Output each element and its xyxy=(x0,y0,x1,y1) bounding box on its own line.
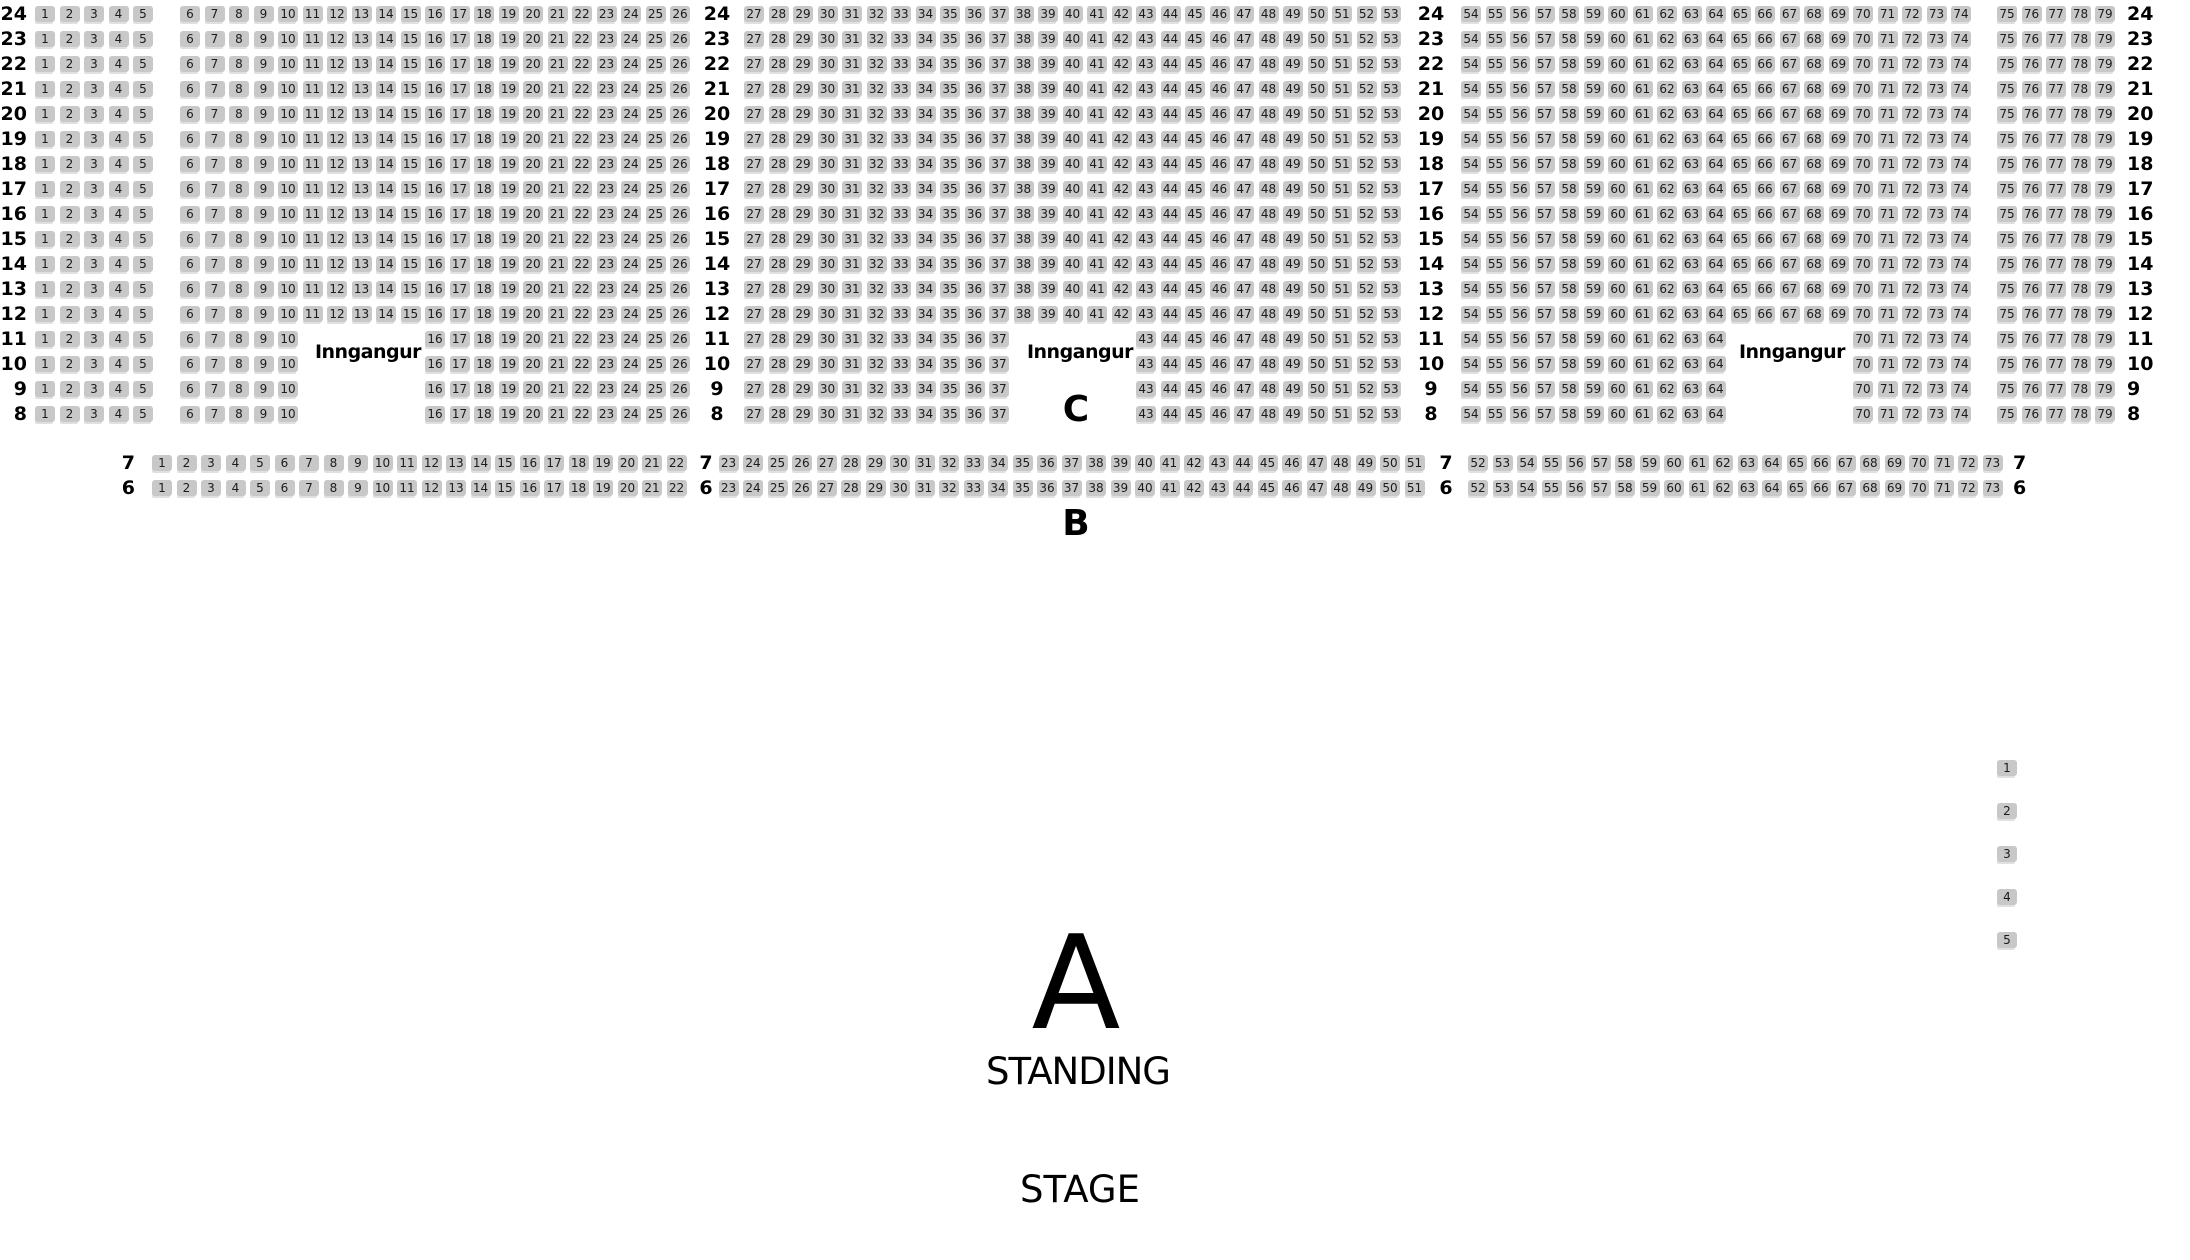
seat-c10-24[interactable]: 24 xyxy=(621,356,641,372)
seat-c13-74[interactable]: 74 xyxy=(1951,281,1971,297)
seat-c20-45[interactable]: 45 xyxy=(1185,106,1205,122)
seat-c22-49[interactable]: 49 xyxy=(1283,56,1303,72)
seat-c12-27[interactable]: 27 xyxy=(744,306,764,322)
seat-c8-48[interactable]: 48 xyxy=(1259,406,1279,422)
seat-c21-7[interactable]: 7 xyxy=(205,81,225,97)
seat-c22-74[interactable]: 74 xyxy=(1951,56,1971,72)
seat-c19-63[interactable]: 63 xyxy=(1682,131,1702,147)
seat-c20-10[interactable]: 10 xyxy=(278,106,298,122)
seat-c14-48[interactable]: 48 xyxy=(1259,256,1279,272)
seat-b6-25[interactable]: 25 xyxy=(768,480,788,496)
seat-c21-61[interactable]: 61 xyxy=(1633,81,1653,97)
seat-c8-73[interactable]: 73 xyxy=(1927,406,1947,422)
seat-c14-16[interactable]: 16 xyxy=(425,256,445,272)
seat-c15-47[interactable]: 47 xyxy=(1234,231,1254,247)
seat-c13-7[interactable]: 7 xyxy=(205,281,225,297)
seat-c14-59[interactable]: 59 xyxy=(1584,256,1604,272)
seat-c13-55[interactable]: 55 xyxy=(1486,281,1506,297)
seat-c22-29[interactable]: 29 xyxy=(793,56,813,72)
seat-c17-54[interactable]: 54 xyxy=(1461,181,1481,197)
seat-c23-60[interactable]: 60 xyxy=(1608,31,1628,47)
seat-b6-49[interactable]: 49 xyxy=(1356,480,1376,496)
seat-c10-62[interactable]: 62 xyxy=(1657,356,1677,372)
seat-c18-5[interactable]: 5 xyxy=(133,156,153,172)
seat-c11-60[interactable]: 60 xyxy=(1608,331,1628,347)
seat-c19-71[interactable]: 71 xyxy=(1878,131,1898,147)
seat-c24-39[interactable]: 39 xyxy=(1038,6,1058,22)
seat-c21-67[interactable]: 67 xyxy=(1780,81,1800,97)
seat-c14-39[interactable]: 39 xyxy=(1038,256,1058,272)
seat-c14-63[interactable]: 63 xyxy=(1682,256,1702,272)
seat-c18-6[interactable]: 6 xyxy=(180,156,200,172)
seat-c24-50[interactable]: 50 xyxy=(1308,6,1328,22)
seat-c23-33[interactable]: 33 xyxy=(891,31,911,47)
seat-c15-18[interactable]: 18 xyxy=(474,231,494,247)
seat-c15-34[interactable]: 34 xyxy=(916,231,936,247)
seat-c15-39[interactable]: 39 xyxy=(1038,231,1058,247)
seat-c8-60[interactable]: 60 xyxy=(1608,406,1628,422)
seat-c16-19[interactable]: 19 xyxy=(499,206,519,222)
seat-b7-40[interactable]: 40 xyxy=(1135,455,1155,471)
seat-c9-37[interactable]: 37 xyxy=(989,381,1009,397)
seat-c16-8[interactable]: 8 xyxy=(229,206,249,222)
seat-c13-69[interactable]: 69 xyxy=(1829,281,1849,297)
seat-c14-18[interactable]: 18 xyxy=(474,256,494,272)
seat-c8-50[interactable]: 50 xyxy=(1308,406,1328,422)
seat-c18-61[interactable]: 61 xyxy=(1633,156,1653,172)
seat-b7-39[interactable]: 39 xyxy=(1111,455,1131,471)
seat-c17-16[interactable]: 16 xyxy=(425,181,445,197)
seat-c23-63[interactable]: 63 xyxy=(1682,31,1702,47)
seat-b7-49[interactable]: 49 xyxy=(1356,455,1376,471)
seat-c21-63[interactable]: 63 xyxy=(1682,81,1702,97)
seat-c19-56[interactable]: 56 xyxy=(1510,131,1530,147)
seat-c18-21[interactable]: 21 xyxy=(548,156,568,172)
seat-c20-28[interactable]: 28 xyxy=(769,106,789,122)
seat-c20-6[interactable]: 6 xyxy=(180,106,200,122)
seat-c17-1[interactable]: 1 xyxy=(35,181,55,197)
seat-b7-59[interactable]: 59 xyxy=(1640,455,1660,471)
seat-c9-47[interactable]: 47 xyxy=(1234,381,1254,397)
seat-c14-12[interactable]: 12 xyxy=(327,256,347,272)
seat-c23-53[interactable]: 53 xyxy=(1381,31,1401,47)
seat-c19-26[interactable]: 26 xyxy=(670,131,690,147)
seat-c17-53[interactable]: 53 xyxy=(1381,181,1401,197)
seat-c10-5[interactable]: 5 xyxy=(133,356,153,372)
seat-c12-14[interactable]: 14 xyxy=(376,306,396,322)
seat-c24-26[interactable]: 26 xyxy=(670,6,690,22)
seat-c9-28[interactable]: 28 xyxy=(769,381,789,397)
seat-c13-15[interactable]: 15 xyxy=(401,281,421,297)
seat-c24-20[interactable]: 20 xyxy=(523,6,543,22)
seat-c20-37[interactable]: 37 xyxy=(989,106,1009,122)
seat-c19-55[interactable]: 55 xyxy=(1486,131,1506,147)
seat-c14-50[interactable]: 50 xyxy=(1308,256,1328,272)
seat-b7-56[interactable]: 56 xyxy=(1566,455,1586,471)
seat-c17-39[interactable]: 39 xyxy=(1038,181,1058,197)
seat-c15-33[interactable]: 33 xyxy=(891,231,911,247)
seat-c22-6[interactable]: 6 xyxy=(180,56,200,72)
seat-c9-20[interactable]: 20 xyxy=(523,381,543,397)
seat-c22-77[interactable]: 77 xyxy=(2046,56,2066,72)
seat-c8-31[interactable]: 31 xyxy=(842,406,862,422)
seat-c23-11[interactable]: 11 xyxy=(303,31,323,47)
seat-c14-73[interactable]: 73 xyxy=(1927,256,1947,272)
seat-c15-15[interactable]: 15 xyxy=(401,231,421,247)
seat-c20-5[interactable]: 5 xyxy=(133,106,153,122)
seat-c14-72[interactable]: 72 xyxy=(1902,256,1922,272)
seat-c10-56[interactable]: 56 xyxy=(1510,356,1530,372)
seat-c15-59[interactable]: 59 xyxy=(1584,231,1604,247)
seat-c18-17[interactable]: 17 xyxy=(450,156,470,172)
seat-c22-32[interactable]: 32 xyxy=(867,56,887,72)
seat-c20-34[interactable]: 34 xyxy=(916,106,936,122)
seat-c13-10[interactable]: 10 xyxy=(278,281,298,297)
seat-b7-52[interactable]: 52 xyxy=(1468,455,1488,471)
seat-c9-76[interactable]: 76 xyxy=(2022,381,2042,397)
seat-b7-71[interactable]: 71 xyxy=(1934,455,1954,471)
seat-c19-43[interactable]: 43 xyxy=(1136,131,1156,147)
seat-b7-10[interactable]: 10 xyxy=(373,455,393,471)
seat-b7-57[interactable]: 57 xyxy=(1591,455,1611,471)
seat-c13-47[interactable]: 47 xyxy=(1234,281,1254,297)
seat-b6-54[interactable]: 54 xyxy=(1517,480,1537,496)
seat-c17-42[interactable]: 42 xyxy=(1112,181,1132,197)
seat-c11-62[interactable]: 62 xyxy=(1657,331,1677,347)
seat-c10-74[interactable]: 74 xyxy=(1951,356,1971,372)
seat-c18-71[interactable]: 71 xyxy=(1878,156,1898,172)
seat-c10-45[interactable]: 45 xyxy=(1185,356,1205,372)
seat-c8-55[interactable]: 55 xyxy=(1486,406,1506,422)
seat-c22-61[interactable]: 61 xyxy=(1633,56,1653,72)
seat-c18-62[interactable]: 62 xyxy=(1657,156,1677,172)
seat-c21-2[interactable]: 2 xyxy=(60,81,80,97)
seat-c23-64[interactable]: 64 xyxy=(1706,31,1726,47)
seat-c8-43[interactable]: 43 xyxy=(1136,406,1156,422)
seat-b6-12[interactable]: 12 xyxy=(422,480,442,496)
seat-b7-20[interactable]: 20 xyxy=(618,455,638,471)
seat-c12-48[interactable]: 48 xyxy=(1259,306,1279,322)
seat-c12-29[interactable]: 29 xyxy=(793,306,813,322)
seat-c21-18[interactable]: 18 xyxy=(474,81,494,97)
seat-c11-27[interactable]: 27 xyxy=(744,331,764,347)
seat-c21-24[interactable]: 24 xyxy=(621,81,641,97)
seat-c16-74[interactable]: 74 xyxy=(1951,206,1971,222)
seat-c23-67[interactable]: 67 xyxy=(1780,31,1800,47)
seat-c21-50[interactable]: 50 xyxy=(1308,81,1328,97)
seat-b6-73[interactable]: 73 xyxy=(1983,480,2003,496)
seat-c8-7[interactable]: 7 xyxy=(205,406,225,422)
seat-c17-36[interactable]: 36 xyxy=(965,181,985,197)
seat-c20-13[interactable]: 13 xyxy=(352,106,372,122)
seat-c10-6[interactable]: 6 xyxy=(180,356,200,372)
seat-c15-56[interactable]: 56 xyxy=(1510,231,1530,247)
seat-c19-42[interactable]: 42 xyxy=(1112,131,1132,147)
seat-c14-17[interactable]: 17 xyxy=(450,256,470,272)
seat-c18-4[interactable]: 4 xyxy=(109,156,129,172)
seat-c11-10[interactable]: 10 xyxy=(278,331,298,347)
seat-c19-60[interactable]: 60 xyxy=(1608,131,1628,147)
seat-c13-23[interactable]: 23 xyxy=(597,281,617,297)
seat-c14-27[interactable]: 27 xyxy=(744,256,764,272)
seat-c10-16[interactable]: 16 xyxy=(425,356,445,372)
seat-b6-27[interactable]: 27 xyxy=(817,480,837,496)
seat-c16-37[interactable]: 37 xyxy=(989,206,1009,222)
seat-c13-56[interactable]: 56 xyxy=(1510,281,1530,297)
seat-c10-22[interactable]: 22 xyxy=(572,356,592,372)
seat-c11-3[interactable]: 3 xyxy=(84,331,104,347)
seat-c12-22[interactable]: 22 xyxy=(572,306,592,322)
seat-c15-40[interactable]: 40 xyxy=(1063,231,1083,247)
seat-c16-55[interactable]: 55 xyxy=(1486,206,1506,222)
seat-c10-61[interactable]: 61 xyxy=(1633,356,1653,372)
seat-c9-55[interactable]: 55 xyxy=(1486,381,1506,397)
seat-c13-12[interactable]: 12 xyxy=(327,281,347,297)
seat-c23-9[interactable]: 9 xyxy=(254,31,274,47)
seat-c22-45[interactable]: 45 xyxy=(1185,56,1205,72)
seat-b6-6[interactable]: 6 xyxy=(275,480,295,496)
seat-c22-63[interactable]: 63 xyxy=(1682,56,1702,72)
seat-c20-25[interactable]: 25 xyxy=(646,106,666,122)
seat-c20-14[interactable]: 14 xyxy=(376,106,396,122)
seat-c12-26[interactable]: 26 xyxy=(670,306,690,322)
seat-c18-7[interactable]: 7 xyxy=(205,156,225,172)
seat-c24-22[interactable]: 22 xyxy=(572,6,592,22)
seat-b6-16[interactable]: 16 xyxy=(520,480,540,496)
seat-c16-62[interactable]: 62 xyxy=(1657,206,1677,222)
seat-c12-19[interactable]: 19 xyxy=(499,306,519,322)
seat-c24-19[interactable]: 19 xyxy=(499,6,519,22)
seat-c19-54[interactable]: 54 xyxy=(1461,131,1481,147)
seat-c14-68[interactable]: 68 xyxy=(1804,256,1824,272)
seat-c20-32[interactable]: 32 xyxy=(867,106,887,122)
seat-c8-30[interactable]: 30 xyxy=(818,406,838,422)
seat-c12-74[interactable]: 74 xyxy=(1951,306,1971,322)
seat-c21-44[interactable]: 44 xyxy=(1161,81,1181,97)
seat-c9-72[interactable]: 72 xyxy=(1902,381,1922,397)
seat-c21-68[interactable]: 68 xyxy=(1804,81,1824,97)
seat-c9-24[interactable]: 24 xyxy=(621,381,641,397)
seat-c22-30[interactable]: 30 xyxy=(818,56,838,72)
seat-b7-28[interactable]: 28 xyxy=(841,455,861,471)
seat-c18-44[interactable]: 44 xyxy=(1161,156,1181,172)
seat-c12-62[interactable]: 62 xyxy=(1657,306,1677,322)
seat-c24-2[interactable]: 2 xyxy=(60,6,80,22)
seat-c8-61[interactable]: 61 xyxy=(1633,406,1653,422)
seat-c15-45[interactable]: 45 xyxy=(1185,231,1205,247)
seat-c8-33[interactable]: 33 xyxy=(891,406,911,422)
seat-b7-35[interactable]: 35 xyxy=(1013,455,1033,471)
seat-c23-61[interactable]: 61 xyxy=(1633,31,1653,47)
seat-c10-55[interactable]: 55 xyxy=(1486,356,1506,372)
seat-c9-7[interactable]: 7 xyxy=(205,381,225,397)
seat-c20-19[interactable]: 19 xyxy=(499,106,519,122)
seat-b7-37[interactable]: 37 xyxy=(1062,455,1082,471)
seat-c13-54[interactable]: 54 xyxy=(1461,281,1481,297)
seat-c21-65[interactable]: 65 xyxy=(1731,81,1751,97)
seat-c19-76[interactable]: 76 xyxy=(2022,131,2042,147)
seat-c8-17[interactable]: 17 xyxy=(450,406,470,422)
seat-c11-7[interactable]: 7 xyxy=(205,331,225,347)
seat-c15-12[interactable]: 12 xyxy=(327,231,347,247)
seat-c18-74[interactable]: 74 xyxy=(1951,156,1971,172)
seat-c15-4[interactable]: 4 xyxy=(109,231,129,247)
seat-c18-55[interactable]: 55 xyxy=(1486,156,1506,172)
seat-c15-35[interactable]: 35 xyxy=(940,231,960,247)
seat-c17-12[interactable]: 12 xyxy=(327,181,347,197)
seat-c17-19[interactable]: 19 xyxy=(499,181,519,197)
seat-c19-66[interactable]: 66 xyxy=(1755,131,1775,147)
seat-b6-68[interactable]: 68 xyxy=(1860,480,1880,496)
seat-c18-16[interactable]: 16 xyxy=(425,156,445,172)
seat-c18-12[interactable]: 12 xyxy=(327,156,347,172)
seat-c16-78[interactable]: 78 xyxy=(2071,206,2091,222)
seat-c22-13[interactable]: 13 xyxy=(352,56,372,72)
seat-c11-63[interactable]: 63 xyxy=(1682,331,1702,347)
seat-c9-17[interactable]: 17 xyxy=(450,381,470,397)
seat-c18-47[interactable]: 47 xyxy=(1234,156,1254,172)
seat-c9-49[interactable]: 49 xyxy=(1283,381,1303,397)
seat-side-5[interactable]: 5 xyxy=(1997,932,2017,948)
seat-c17-20[interactable]: 20 xyxy=(523,181,543,197)
seat-c23-76[interactable]: 76 xyxy=(2022,31,2042,47)
seat-c14-57[interactable]: 57 xyxy=(1535,256,1555,272)
seat-c23-37[interactable]: 37 xyxy=(989,31,1009,47)
seat-c11-51[interactable]: 51 xyxy=(1332,331,1352,347)
seat-b7-73[interactable]: 73 xyxy=(1983,455,2003,471)
seat-c9-77[interactable]: 77 xyxy=(2046,381,2066,397)
seat-c21-38[interactable]: 38 xyxy=(1014,81,1034,97)
seat-c19-62[interactable]: 62 xyxy=(1657,131,1677,147)
seat-c15-65[interactable]: 65 xyxy=(1731,231,1751,247)
seat-c11-74[interactable]: 74 xyxy=(1951,331,1971,347)
seat-c10-59[interactable]: 59 xyxy=(1584,356,1604,372)
seat-b7-45[interactable]: 45 xyxy=(1258,455,1278,471)
seat-c11-61[interactable]: 61 xyxy=(1633,331,1653,347)
seat-b6-56[interactable]: 56 xyxy=(1566,480,1586,496)
seat-c9-53[interactable]: 53 xyxy=(1381,381,1401,397)
seat-c17-30[interactable]: 30 xyxy=(818,181,838,197)
seat-c19-67[interactable]: 67 xyxy=(1780,131,1800,147)
seat-c20-77[interactable]: 77 xyxy=(2046,106,2066,122)
seat-c12-4[interactable]: 4 xyxy=(109,306,129,322)
seat-c19-51[interactable]: 51 xyxy=(1332,131,1352,147)
seat-c16-79[interactable]: 79 xyxy=(2095,206,2115,222)
seat-c12-35[interactable]: 35 xyxy=(940,306,960,322)
seat-b7-27[interactable]: 27 xyxy=(817,455,837,471)
seat-c10-18[interactable]: 18 xyxy=(474,356,494,372)
seat-c16-66[interactable]: 66 xyxy=(1755,206,1775,222)
seat-c18-79[interactable]: 79 xyxy=(2095,156,2115,172)
seat-c14-44[interactable]: 44 xyxy=(1161,256,1181,272)
seat-c21-26[interactable]: 26 xyxy=(670,81,690,97)
seat-c10-75[interactable]: 75 xyxy=(1997,356,2017,372)
seat-c23-27[interactable]: 27 xyxy=(744,31,764,47)
seat-c23-4[interactable]: 4 xyxy=(109,31,129,47)
seat-c13-61[interactable]: 61 xyxy=(1633,281,1653,297)
seat-c17-52[interactable]: 52 xyxy=(1357,181,1377,197)
seat-c12-36[interactable]: 36 xyxy=(965,306,985,322)
seat-c12-33[interactable]: 33 xyxy=(891,306,911,322)
seat-c10-76[interactable]: 76 xyxy=(2022,356,2042,372)
seat-c20-57[interactable]: 57 xyxy=(1535,106,1555,122)
seat-c21-34[interactable]: 34 xyxy=(916,81,936,97)
seat-c19-7[interactable]: 7 xyxy=(205,131,225,147)
seat-c13-62[interactable]: 62 xyxy=(1657,281,1677,297)
seat-b6-34[interactable]: 34 xyxy=(988,480,1008,496)
seat-c23-14[interactable]: 14 xyxy=(376,31,396,47)
seat-c11-35[interactable]: 35 xyxy=(940,331,960,347)
seat-c8-2[interactable]: 2 xyxy=(60,406,80,422)
seat-b6-26[interactable]: 26 xyxy=(792,480,812,496)
seat-b7-72[interactable]: 72 xyxy=(1958,455,1978,471)
seat-c12-5[interactable]: 5 xyxy=(133,306,153,322)
seat-c17-22[interactable]: 22 xyxy=(572,181,592,197)
seat-b7-31[interactable]: 31 xyxy=(915,455,935,471)
seat-c17-3[interactable]: 3 xyxy=(84,181,104,197)
seat-c9-74[interactable]: 74 xyxy=(1951,381,1971,397)
seat-c18-42[interactable]: 42 xyxy=(1112,156,1132,172)
seat-c15-1[interactable]: 1 xyxy=(35,231,55,247)
seat-c10-44[interactable]: 44 xyxy=(1161,356,1181,372)
seat-c8-75[interactable]: 75 xyxy=(1997,406,2017,422)
seat-c21-14[interactable]: 14 xyxy=(376,81,396,97)
seat-c24-64[interactable]: 64 xyxy=(1706,6,1726,22)
seat-c16-72[interactable]: 72 xyxy=(1902,206,1922,222)
seat-c22-27[interactable]: 27 xyxy=(744,56,764,72)
seat-b7-68[interactable]: 68 xyxy=(1860,455,1880,471)
seat-c14-1[interactable]: 1 xyxy=(35,256,55,272)
seat-b6-19[interactable]: 19 xyxy=(593,480,613,496)
seat-c16-73[interactable]: 73 xyxy=(1927,206,1947,222)
seat-c22-42[interactable]: 42 xyxy=(1112,56,1132,72)
seat-c18-30[interactable]: 30 xyxy=(818,156,838,172)
seat-c12-16[interactable]: 16 xyxy=(425,306,445,322)
seat-c21-55[interactable]: 55 xyxy=(1486,81,1506,97)
seat-c22-5[interactable]: 5 xyxy=(133,56,153,72)
seat-c14-25[interactable]: 25 xyxy=(646,256,666,272)
seat-c17-15[interactable]: 15 xyxy=(401,181,421,197)
seat-c23-16[interactable]: 16 xyxy=(425,31,445,47)
seat-c9-44[interactable]: 44 xyxy=(1161,381,1181,397)
seat-c11-1[interactable]: 1 xyxy=(35,331,55,347)
seat-c8-25[interactable]: 25 xyxy=(646,406,666,422)
seat-c22-7[interactable]: 7 xyxy=(205,56,225,72)
seat-c18-34[interactable]: 34 xyxy=(916,156,936,172)
seat-c16-50[interactable]: 50 xyxy=(1308,206,1328,222)
seat-b7-61[interactable]: 61 xyxy=(1689,455,1709,471)
seat-c24-74[interactable]: 74 xyxy=(1951,6,1971,22)
seat-b7-66[interactable]: 66 xyxy=(1811,455,1831,471)
seat-c14-60[interactable]: 60 xyxy=(1608,256,1628,272)
seat-c22-19[interactable]: 19 xyxy=(499,56,519,72)
seat-b7-1[interactable]: 1 xyxy=(152,455,172,471)
seat-c15-67[interactable]: 67 xyxy=(1780,231,1800,247)
seat-c23-20[interactable]: 20 xyxy=(523,31,543,47)
seat-c24-1[interactable]: 1 xyxy=(35,6,55,22)
seat-c10-31[interactable]: 31 xyxy=(842,356,862,372)
seat-c23-73[interactable]: 73 xyxy=(1927,31,1947,47)
seat-c14-31[interactable]: 31 xyxy=(842,256,862,272)
seat-b6-14[interactable]: 14 xyxy=(471,480,491,496)
seat-c16-22[interactable]: 22 xyxy=(572,206,592,222)
seat-c13-31[interactable]: 31 xyxy=(842,281,862,297)
seat-c18-15[interactable]: 15 xyxy=(401,156,421,172)
seat-c18-19[interactable]: 19 xyxy=(499,156,519,172)
seat-c19-23[interactable]: 23 xyxy=(597,131,617,147)
seat-c20-53[interactable]: 53 xyxy=(1381,106,1401,122)
seat-c22-57[interactable]: 57 xyxy=(1535,56,1555,72)
